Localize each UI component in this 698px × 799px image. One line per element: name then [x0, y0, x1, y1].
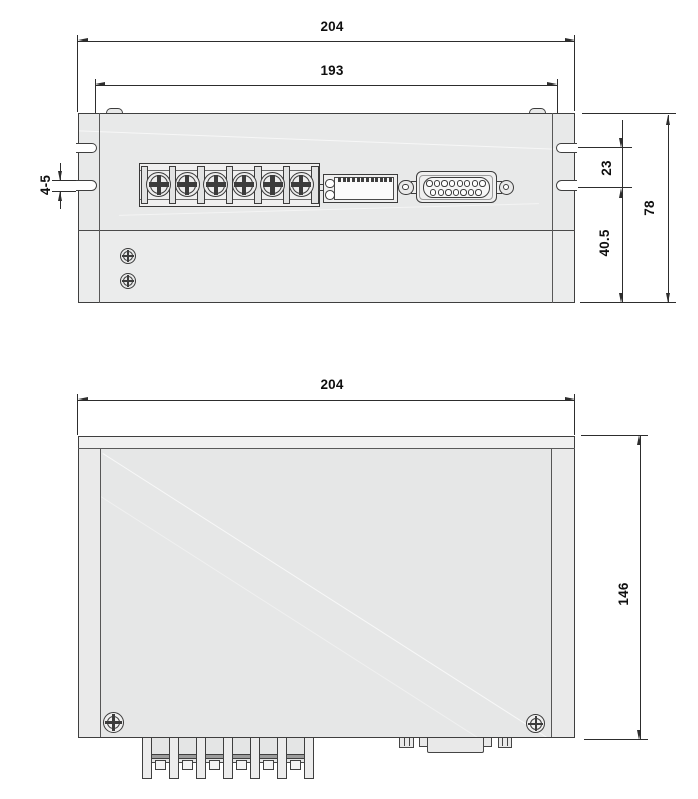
dip-switch-lever — [343, 177, 346, 182]
arrowhead — [637, 730, 641, 740]
terminal-bay-tab — [209, 760, 220, 769]
dsub-pin-hole — [445, 189, 451, 195]
dsub-pin-hole — [438, 189, 444, 195]
dsub-pin-hole — [449, 180, 455, 186]
terminal-pin — [142, 738, 152, 779]
dip-switch-lever — [361, 177, 364, 182]
screw-slot-v — [127, 275, 129, 287]
terminal-pin — [223, 738, 233, 779]
face-edge-line — [78, 230, 575, 231]
terminal-bay-tab — [290, 760, 301, 769]
screw-slot-v — [270, 175, 274, 195]
extension-line — [77, 35, 78, 112]
arrowhead — [619, 188, 623, 198]
arrowhead — [666, 115, 670, 125]
arrowhead — [95, 82, 105, 86]
dim-label-overall-width-front: 204 — [310, 377, 354, 393]
mounting-slot-right-upper — [556, 143, 577, 154]
terminal-bay-tab — [155, 760, 166, 769]
dip-switch-lever — [380, 177, 383, 182]
terminal-pin — [169, 738, 179, 779]
terminal-pin — [277, 738, 287, 779]
screw-slot-v — [299, 175, 303, 195]
dsub-pin-hole — [460, 189, 466, 195]
extension-tick — [52, 180, 76, 181]
panel-sheen — [100, 491, 552, 738]
screw-slot-v — [214, 175, 218, 195]
dim-label-slot-width: 4-5 — [38, 165, 54, 205]
dip-switch-lever — [366, 177, 369, 182]
dim-label-overall-width-top: 204 — [310, 19, 354, 35]
dsub-jackscrew-left — [398, 180, 413, 195]
edge-bump-right — [529, 108, 546, 114]
arrowhead — [547, 82, 557, 86]
dsub-pin-hole — [453, 189, 459, 195]
dim-label-base-depth: 40.5 — [597, 222, 613, 264]
screw-slot-v — [535, 716, 537, 731]
dim-line — [95, 85, 557, 86]
dip-switch-lever — [389, 177, 392, 182]
terminal-bay-tab — [236, 760, 247, 769]
top-plate-strip — [79, 437, 574, 448]
arrowhead — [565, 397, 575, 401]
arrowhead — [78, 38, 88, 42]
dim-label-slot-span: 193 — [310, 63, 354, 79]
dsub-post-left — [399, 738, 414, 748]
dim-line — [668, 115, 669, 304]
dsub-pin-hole — [457, 180, 463, 186]
dsub-jackscrew-right — [499, 180, 514, 195]
extension-line — [77, 394, 78, 435]
dsub-pin-hole — [426, 180, 432, 186]
flange-line-left — [99, 113, 100, 303]
arrowhead — [666, 293, 670, 303]
dim-line — [78, 400, 575, 401]
mounting-slot-right-lower — [556, 180, 577, 191]
extension-line — [574, 394, 575, 435]
dsub-jackscrew-hole — [402, 184, 409, 191]
terminal-pin — [304, 738, 314, 779]
arrowhead — [565, 38, 575, 42]
screw-slot-v — [242, 175, 246, 195]
dsub-pin-hole — [441, 180, 447, 186]
screw-slot-v — [185, 175, 189, 195]
front-panel — [100, 449, 552, 738]
terminal-pin — [250, 738, 260, 779]
dip-switch-lever — [371, 177, 374, 182]
dsub-pin-hole — [475, 189, 481, 195]
terminal-pin — [196, 738, 206, 779]
dsub-pin-hole — [468, 189, 474, 195]
panel-sheen — [102, 453, 552, 738]
front-view: 204 — [0, 360, 698, 799]
base-section-shade — [79, 231, 574, 303]
dim-label-overall-depth: 78 — [642, 188, 658, 228]
dimension-drawing: 204 193 4-5 — [0, 0, 698, 799]
dip-switch-lever — [347, 177, 350, 182]
screw-slot-v — [157, 175, 161, 195]
dip-switch-lever — [384, 177, 387, 182]
dip-switch-lever — [352, 177, 355, 182]
arrowhead — [58, 171, 62, 181]
dim-label-slot-spacing: 23 — [599, 148, 615, 188]
dim-line — [640, 435, 641, 740]
extension-tick — [52, 191, 76, 192]
mounting-slot-left-upper — [76, 143, 97, 154]
top-view: 204 193 4-5 — [0, 0, 698, 360]
dsub-post-inner — [404, 738, 410, 746]
terminal-bay-tab — [263, 760, 274, 769]
edge-bump-left — [106, 108, 123, 114]
terminal-screw — [175, 172, 200, 197]
screw-slot-v — [127, 250, 129, 262]
terminal-screw — [289, 172, 314, 197]
extension-line — [574, 35, 575, 111]
arrowhead — [78, 397, 88, 401]
dsub-post-right — [498, 738, 513, 748]
arrowhead — [58, 191, 62, 201]
dsub-post-inner — [502, 738, 508, 746]
dsub-jackscrew-hole — [503, 184, 510, 191]
extension-line — [582, 113, 676, 114]
arrowhead — [619, 293, 623, 303]
arrowhead — [619, 138, 623, 148]
dim-line — [78, 41, 575, 42]
dsub-front-shell — [427, 738, 484, 753]
led-indicator — [325, 190, 335, 200]
mounting-slot-left-lower — [76, 180, 97, 191]
extension-line — [580, 302, 676, 303]
brushed-streak — [78, 130, 575, 151]
dsub-pin-hole — [472, 180, 478, 186]
dip-switch-lever — [375, 177, 378, 182]
terminal-screw — [232, 172, 257, 197]
dip-switch-lever — [357, 177, 360, 182]
flange-line-right — [552, 113, 553, 303]
dip-switch-lever — [338, 177, 341, 182]
dsub-pin-hole — [479, 180, 485, 186]
arrowhead — [637, 435, 641, 445]
dim-label-overall-height: 146 — [616, 572, 632, 616]
led-indicator — [325, 179, 335, 189]
dsub-pin-hole — [434, 180, 440, 186]
screw-slot-v — [112, 714, 114, 730]
terminal-bay-tab — [182, 760, 193, 769]
